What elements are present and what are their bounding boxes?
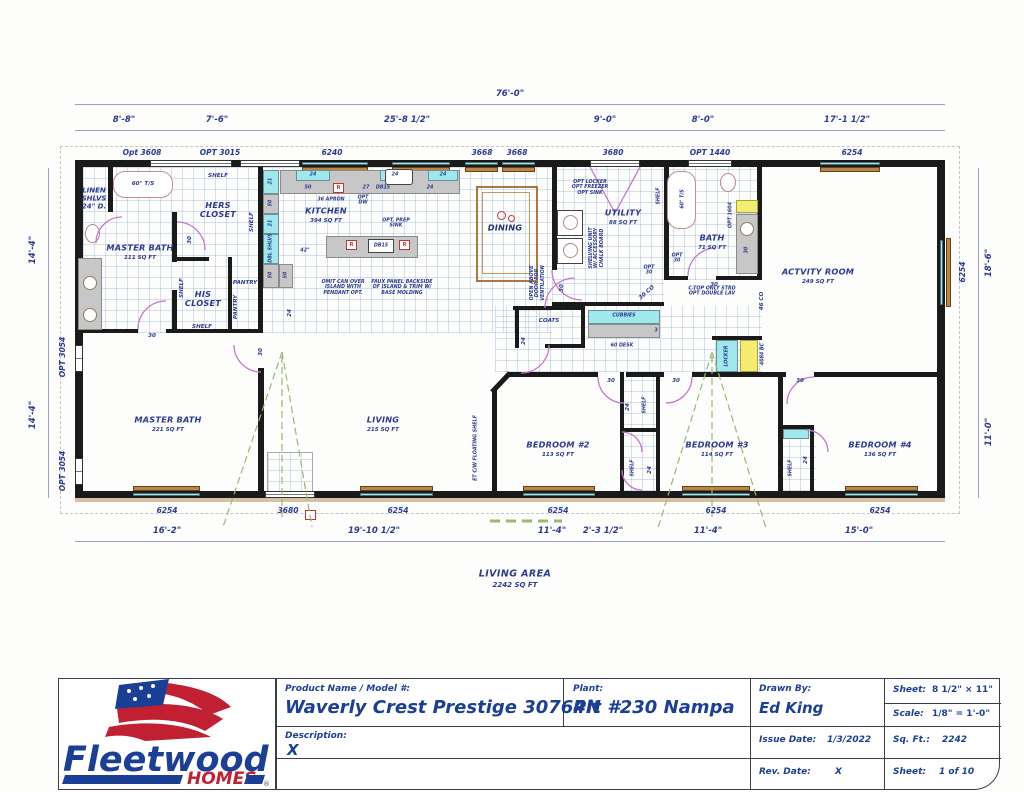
door-label: 3680 (603, 149, 624, 157)
window-label: 6254 (388, 507, 409, 515)
annotation: SHELF (192, 324, 212, 330)
annotation: OPT. PREP SINK (382, 219, 410, 230)
door-size: 24 (803, 456, 809, 464)
cabinet-size: 50 (268, 272, 273, 279)
divider (884, 679, 885, 789)
room-label: ACTVITY ROOM (782, 267, 854, 276)
door-label: 3680 (278, 507, 299, 515)
registered-mark: ® (263, 780, 270, 787)
cabinet-size: 50 (305, 185, 312, 190)
annotation: 4084 BC (760, 343, 765, 365)
room-sqft: 249 SQ FT (802, 279, 834, 285)
divider (750, 726, 1001, 727)
cabinet-size: DBL SHLVS (268, 233, 273, 262)
dim-label: 8'-0" (692, 116, 714, 126)
annotation: OPT 1604 (728, 202, 733, 228)
window-label: OPT 3054 (59, 337, 67, 377)
scale-label: Scale: (893, 709, 924, 719)
cabinet-size: 24 (440, 172, 447, 177)
window-label: 6254 (959, 262, 967, 283)
cabinet-size: 24 (287, 309, 293, 317)
annotation: LOCKER (724, 345, 729, 366)
dim-line (75, 104, 945, 105)
angled-wall (492, 373, 510, 392)
window-label: OPT 3015 (200, 149, 240, 157)
flag-icon (105, 679, 231, 741)
window-label: OPT 1440 (690, 149, 730, 157)
drawn-by-value: Ed King (759, 699, 823, 717)
dim-label: 11'-0" (985, 418, 995, 446)
door-size: 30 (607, 378, 615, 384)
room-label: BATH (699, 233, 724, 242)
room-label: DINING (488, 223, 523, 232)
dim-label: 15'-0" (845, 527, 873, 537)
annotation: OPEN ABOVE DOOR FOR VENTILATION (530, 265, 546, 301)
door-size: 30 (258, 348, 264, 356)
dim-label: 18'-6" (985, 249, 995, 277)
door-size: 30 (796, 378, 804, 384)
dim-label: 8'-8" (113, 116, 135, 126)
dim-line (75, 541, 945, 542)
window-label: 3668 (472, 149, 493, 157)
annotation: 46 CO (759, 292, 765, 311)
sqft-label: Sq. Ft.: (893, 735, 930, 745)
living-area-title: LIVING AREA (479, 570, 551, 581)
annotation: ET C/W FLOATING SHELF (473, 415, 478, 481)
room-label: BEDROOM #3 (685, 440, 748, 449)
divider (277, 726, 751, 727)
plant-value: Plt #230 Nampa (573, 697, 735, 718)
door-size: 30 (672, 378, 680, 384)
dim-label: 7'-6" (206, 116, 228, 126)
issue-date-value: 1/3/2022 (827, 735, 871, 745)
living-area-sqft: 2242 SQ FT (493, 582, 538, 590)
room-sqft: 71 SQ FT (698, 245, 726, 251)
divider (884, 703, 1001, 704)
annotation: OPT 30 (644, 266, 655, 277)
window-label: 6254 (548, 507, 569, 515)
dim-label: 19'-10 1/2" (348, 527, 400, 537)
room-label: HERS CLOSET (200, 201, 236, 219)
room-label: UTILITY (605, 208, 641, 217)
room-label: BEDROOM #2 (526, 440, 589, 449)
door-size: 24 (647, 466, 653, 474)
dim-label: 9'-0" (594, 116, 616, 126)
room-label: KITCHEN (305, 206, 347, 215)
room-label: BEDROOM #4 (848, 440, 911, 449)
dim-label: 2'-3 1/2" (583, 527, 623, 537)
room-sqft: 215 SQ FT (367, 427, 399, 433)
door-size: 24 (625, 403, 631, 411)
rev-date-label: Rev. Date: (759, 767, 811, 777)
cabinet-size: 30 (744, 247, 749, 254)
cabinet-size: 21 (268, 220, 273, 227)
drawing-sheet: R R R (0, 0, 1024, 792)
room-sqft: 114 SQ FT (701, 452, 733, 458)
annotation: 60" T/S (132, 181, 155, 187)
cabinet-size: DB15 (374, 243, 388, 248)
sqft-value: 2242 (942, 735, 967, 745)
description-value: X (287, 741, 299, 759)
annotation: FAUX PANEL BACKSIDE OF ISLAND & TRIM W/ … (371, 280, 432, 296)
window-label: 6240 (322, 149, 343, 157)
window-label: Opt 3608 (123, 149, 162, 157)
sheet-size-value: 8 1/2" × 11" (932, 685, 993, 695)
annotation: CUBBIES (612, 313, 635, 318)
annotation: 60 DESK (611, 343, 634, 348)
window-label: 6254 (157, 507, 178, 515)
door-size: 24 (521, 337, 527, 345)
room-sqft: 111 SQ FT (124, 255, 156, 261)
divider (277, 758, 1001, 759)
dim-label: 25'-8 1/2" (384, 116, 430, 126)
annotation: SHELF (642, 396, 647, 413)
annotation: SHELF (208, 173, 228, 179)
door-size: 30 (148, 333, 156, 339)
cabinet-size: 24 (310, 172, 317, 177)
room-sqft: 221 SQ FT (152, 427, 184, 433)
annotation: OPT DW (358, 196, 369, 207)
annotation: SHELF (788, 459, 793, 476)
window-label: 6254 (870, 507, 891, 515)
description-label: Description: (285, 731, 347, 741)
door-size: 30 (559, 284, 565, 292)
fleetwood-logo: Fleetwood HOMES ® (59, 679, 274, 787)
cabinet-size: 21 (268, 178, 273, 185)
dim-line (75, 130, 945, 131)
dim-label: 11'-4" (538, 527, 566, 537)
scale-value: 1/8" = 1'-0" (932, 709, 990, 719)
rev-date-value: X (835, 767, 842, 777)
plant-label: Plant: (573, 684, 603, 694)
room-sqft: 136 SQ FT (864, 452, 896, 458)
annotation: OPT 30 (672, 254, 683, 265)
annotation: PANTRY (233, 280, 257, 286)
annotation: SHELF (656, 187, 661, 204)
room-sqft: 88 SQ FT (609, 220, 637, 226)
window-label: 3668 (507, 149, 528, 157)
dim-label: 11'-4" (694, 527, 722, 537)
room-sqft: 394 SQ FT (310, 218, 342, 224)
dim-label: 14'-4" (29, 401, 39, 429)
cabinet-size: 24 (392, 172, 399, 177)
annotation: C-TOP ONLY STRD OPT DOUBLE LAV (688, 287, 735, 298)
cabinet-size: 24 (427, 185, 434, 190)
window-label: 6254 (842, 149, 863, 157)
annotation: 3 (654, 328, 657, 333)
annotation: OPT LOCKER OPT FREEZER OPT SINK (572, 180, 609, 196)
door-size: 30 (187, 236, 193, 244)
annotation: SHELF (249, 212, 255, 232)
annotation: 60" T/S (680, 189, 685, 208)
dim-label: 16'-2" (153, 527, 181, 537)
product-value: Waverly Crest Prestige 30764N (285, 697, 601, 718)
room-label: MASTER BATH (106, 243, 173, 252)
sheet-num-value: 1 of 10 (939, 767, 974, 777)
cabinet-size: 27 (363, 185, 370, 190)
annotation: COATS (539, 318, 560, 324)
dim-label: 76'-0" (496, 90, 524, 100)
annotation: 36 APRON (317, 197, 344, 202)
annotation: SHELVING UNIT W/ ACCESSORY CHALK BOARD (589, 227, 605, 268)
window-label: OPT 3054 (59, 451, 67, 491)
cabinet-size: 50 (283, 272, 288, 279)
annotation: 42" (300, 248, 309, 253)
sheet-size-label: Sheet: (893, 685, 926, 695)
window-label: 6254 (706, 507, 727, 515)
annotation: OMIT CAN OVER ISLAND WITH PENDANT OPT. (321, 280, 364, 296)
dim-line (978, 168, 979, 498)
room-label: HIS CLOSET (185, 290, 221, 308)
dim-label: 14'-4" (29, 236, 39, 264)
room-label: LIVING (367, 415, 399, 424)
cabinet-size: 50 (268, 200, 273, 207)
drawn-by-label: Drawn By: (759, 684, 811, 694)
cabinet-size: DB15 (376, 185, 390, 190)
title-block: Product Name / Model #: Waverly Crest Pr… (276, 678, 1000, 790)
room-sqft: 113 SQ FT (542, 452, 574, 458)
annotation: PANTRY (233, 295, 239, 319)
logo-box: Fleetwood HOMES ® (58, 678, 276, 790)
room-label: MASTER BATH (134, 415, 201, 424)
annotation: SHELF (179, 278, 185, 298)
dim-label: 17'-1 1/2" (824, 116, 870, 126)
issue-date-label: Issue Date: (759, 735, 816, 745)
divider (750, 679, 751, 789)
product-label: Product Name / Model #: (285, 684, 410, 694)
annotation: SHELF (630, 459, 635, 476)
dim-line (48, 168, 49, 498)
annotation: LINEN SHLVS 24" D. (82, 187, 107, 210)
sheet-num-label: Sheet: (893, 767, 926, 777)
